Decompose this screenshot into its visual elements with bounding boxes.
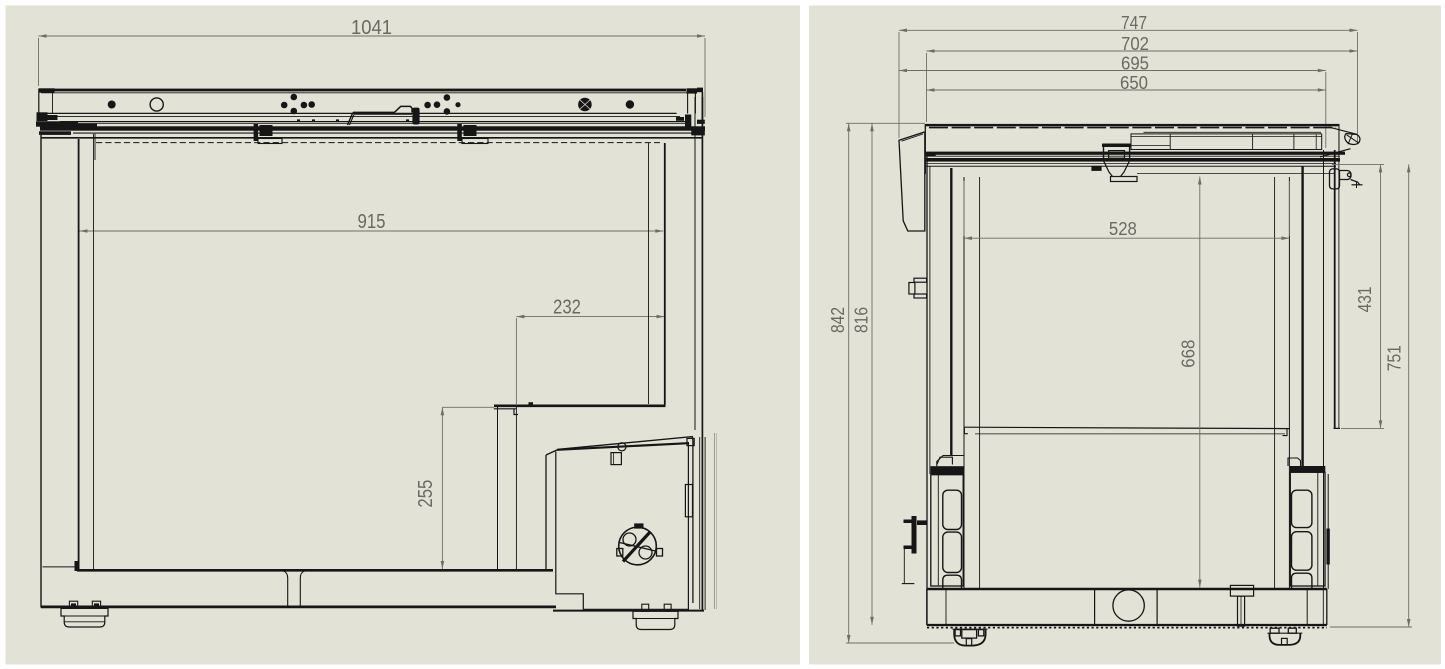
- svg-text:915: 915: [358, 210, 386, 233]
- svg-text:751: 751: [1384, 345, 1404, 371]
- svg-text:1041: 1041: [351, 16, 392, 39]
- svg-text:702: 702: [1121, 34, 1149, 54]
- svg-text:695: 695: [1121, 54, 1149, 74]
- svg-text:528: 528: [1109, 219, 1137, 239]
- svg-text:816: 816: [851, 307, 871, 333]
- svg-text:668: 668: [1179, 340, 1199, 368]
- svg-text:650: 650: [1120, 73, 1148, 93]
- svg-text:842: 842: [828, 307, 848, 333]
- svg-text:255: 255: [414, 480, 437, 508]
- svg-text:232: 232: [553, 296, 581, 319]
- svg-text:747: 747: [1121, 13, 1147, 33]
- svg-text:431: 431: [1355, 286, 1375, 312]
